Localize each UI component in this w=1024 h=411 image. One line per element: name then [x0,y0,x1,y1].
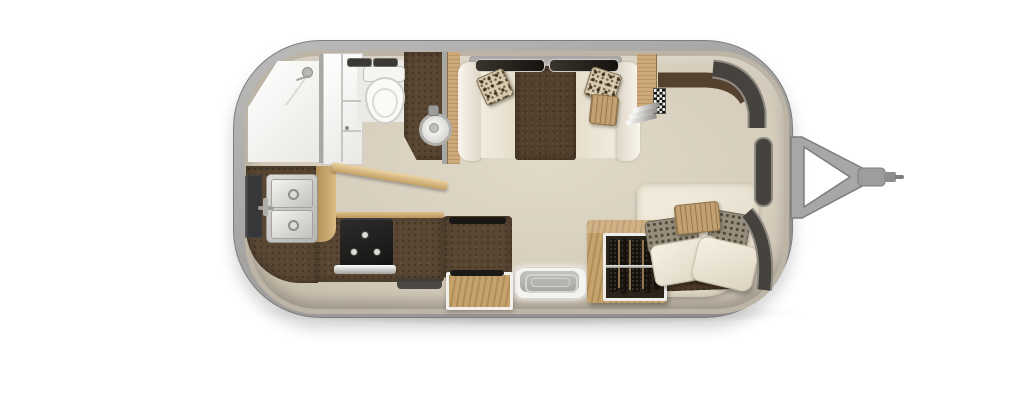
bed-pillow-tan [674,201,722,236]
cabinet-divider-line [341,54,343,162]
closet-rod [606,265,658,268]
roof-vent-slat [373,58,398,67]
cooktop [340,218,393,269]
sink-drain [288,189,299,200]
a-frame-hitch [791,137,904,218]
cabinet-wood-face [316,166,336,242]
step-box-lid-seam [450,270,504,276]
coupler-latch [884,172,896,182]
floor-plan-render [0,0,1024,411]
coupler-handle [895,175,904,179]
sink-drain [429,123,439,133]
hanger-stick [618,240,620,288]
shower-divider-wall [319,54,323,163]
vanity-faucet [428,105,439,116]
roof-vent-slat [347,58,372,67]
entry-step-tread-bar [531,278,570,287]
utensil-ledge [334,265,396,274]
dinette-window-left [475,59,545,72]
cabinet-shelf-line [343,100,361,102]
bench-seat-left [458,62,481,161]
cabinet-knob [345,126,349,130]
burner-knob [361,231,369,239]
console-top-rim [449,217,506,224]
throw-pillow-tan [589,94,620,127]
cabinet-shelf-line [343,130,361,132]
burner-knob [373,248,381,256]
dark-floor-mat [397,279,442,289]
sink-drain [288,220,299,231]
kitchen-faucet-spout [263,198,268,216]
burner-knob [350,248,358,256]
wood-storage-step-box [446,272,513,310]
hitch-coupler [858,168,885,186]
dinette-table [515,66,576,160]
counter-console [443,216,512,278]
